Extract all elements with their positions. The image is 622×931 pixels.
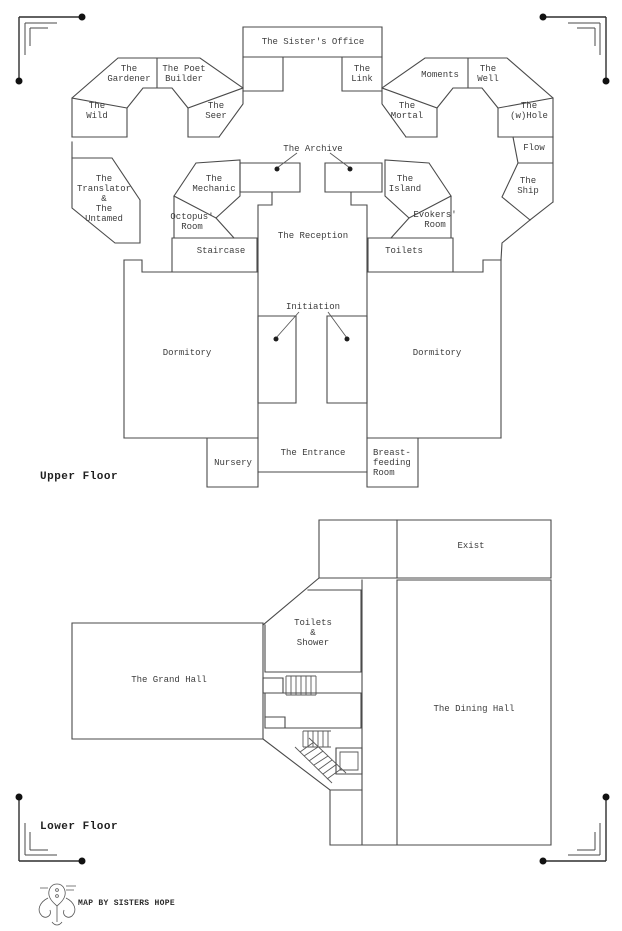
room-label-translator-untamed: The Translator & The Untamed xyxy=(77,174,131,224)
initiation-marker-dot xyxy=(345,337,350,342)
room-label-evokers-room: Evokers' Room xyxy=(413,210,456,230)
room-label-the-poet-builder: The Poet Builder xyxy=(162,64,205,84)
room-label-initiation: Initiation xyxy=(286,302,340,312)
room-label-dormitory-left: Dormitory xyxy=(163,348,212,358)
room-label-the-link: The Link xyxy=(351,64,373,84)
archive-marker-dot xyxy=(275,167,280,172)
room-label-staircase: Staircase xyxy=(197,246,246,256)
room-label-the-island: The Island xyxy=(389,174,421,194)
lower-floor-title: Lower Floor xyxy=(40,821,118,833)
archive-leader-lines xyxy=(277,153,350,168)
sisters-hope-logo xyxy=(39,884,76,925)
room-label-nursery: Nursery xyxy=(214,458,252,468)
room-label-the-reception: The Reception xyxy=(278,231,348,241)
room-label-the-wild: The Wild xyxy=(86,101,108,121)
room-label-grand-hall: The Grand Hall xyxy=(131,675,207,685)
initiation-marker-dot xyxy=(274,337,279,342)
room-label-dormitory-right: Dormitory xyxy=(413,348,462,358)
room-label-sisters-office: The Sister's Office xyxy=(262,37,365,47)
upper-floor-title: Upper Floor xyxy=(40,471,118,483)
staircase-hatching-mid xyxy=(303,731,331,747)
room-label-moments: Moments xyxy=(421,70,459,80)
room-label-the-archive: The Archive xyxy=(283,144,342,154)
room-label-the-entrance: The Entrance xyxy=(281,448,346,458)
room-label-the-well: The Well xyxy=(477,64,499,84)
room-label-the-mechanic: The Mechanic xyxy=(192,174,235,194)
room-label-breastfeeding-room: Breast- feeding Room xyxy=(373,448,411,478)
room-label-the-ship: The Ship xyxy=(517,176,539,196)
corner-mark-bottom-right xyxy=(540,794,610,865)
room-label-the-mortal: The Mortal xyxy=(391,101,423,121)
room-label-flow: Flow xyxy=(523,143,545,153)
room-label-exist: Exist xyxy=(457,541,484,551)
archive-rooms xyxy=(240,153,382,192)
room-label-toilets-shower: Toilets & Shower xyxy=(294,618,332,648)
room-label-the-whole: The (w)Hole xyxy=(510,101,548,121)
room-label-the-seer: The Seer xyxy=(205,101,227,121)
staircase-hatching-upper xyxy=(286,676,316,695)
upper-floor-plan xyxy=(72,27,553,487)
room-label-toilets-upper: Toilets xyxy=(385,246,423,256)
room-label-dining-hall: The Dining Hall xyxy=(433,704,514,714)
archive-marker-dot xyxy=(348,167,353,172)
corner-mark-top-right xyxy=(540,14,610,85)
elevator-box xyxy=(336,748,362,774)
floor-plan-map: The Sister's Office The Link The Gardene… xyxy=(0,0,622,931)
initiation-rooms xyxy=(258,312,367,403)
floor-plan-linework xyxy=(0,0,622,931)
corner-mark-top-left xyxy=(16,14,86,85)
room-label-the-gardener: The Gardener xyxy=(107,64,150,84)
map-credit: MAP BY SISTERS HOPE xyxy=(78,899,175,908)
room-label-octopus-room: Octopus' Room xyxy=(170,212,213,232)
